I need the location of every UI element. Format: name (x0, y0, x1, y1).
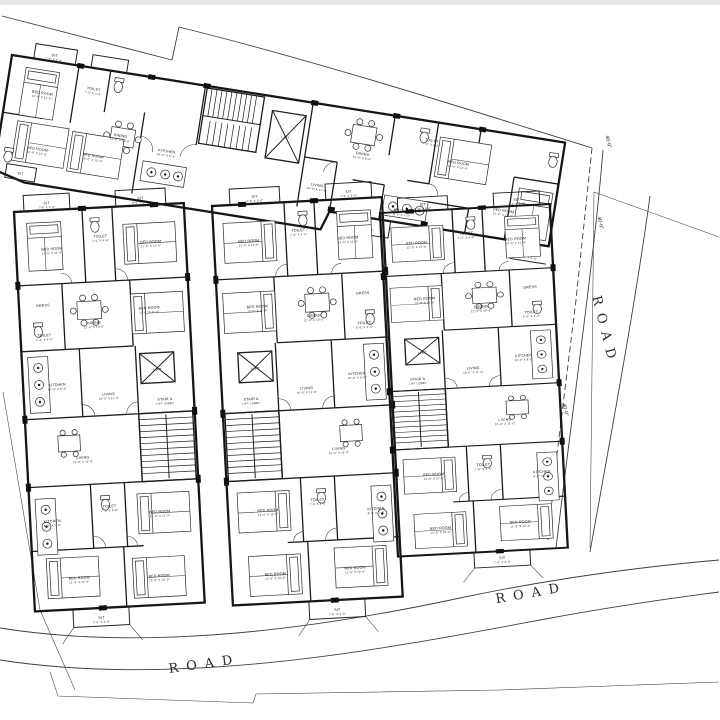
room-label: TOILET6'-6" X 4'-0" (356, 321, 374, 330)
road-label: ROAD (588, 294, 620, 368)
room-label: BED ROOM11'-0" X 12'-0" (69, 576, 91, 585)
room-label: KITCHEN10'-0" X 8'-0" (514, 353, 533, 362)
room-label: TOILET7'-0" X 4'-6" (290, 228, 308, 237)
room-label: STAIR &LIFT LOBBY (156, 397, 174, 406)
room-label: SIT8'-0" X 3'-0" (246, 194, 264, 203)
room-label: KITCHEN8'-0" X 7'-6" (367, 506, 385, 515)
room-label: BED ROOM11'-0" X 12'-0" (140, 239, 162, 248)
toilet-icon (113, 77, 124, 93)
room-label: KITCHEN10'-0" X 8'-0" (157, 148, 177, 159)
dining-table-icon (343, 117, 385, 154)
room-label: SIT7'-6" X 3'-0" (494, 556, 512, 565)
room-label: TOILET6'-6" X 4'-0" (36, 333, 54, 342)
room-label: SIT7'-6" X 3'-0" (93, 616, 111, 625)
block-geometry (11, 187, 209, 646)
block-right: SIT7'-6" X 3'-0"SIT8'-0" X 3'-0"BED ROOM… (377, 190, 572, 586)
room-label: STAIR &LIFT LOBBY (409, 377, 427, 386)
adjacent-plot (590, 192, 719, 548)
room-label: KITCHEN8'-0" X 7'-6" (44, 519, 62, 528)
block-geometry (209, 181, 407, 640)
kitchen-counter-icon (140, 161, 187, 188)
staircase (198, 88, 264, 152)
dimension-label: 40'-0" (596, 216, 605, 230)
room-label: BED ROOM12'-0" X 11'-0" (423, 472, 445, 481)
road-label: ROAD (168, 652, 242, 677)
room-label: LIVING16'-0" X 11'-0" (98, 392, 119, 401)
room-label: LIVING15'-0" X 11'-0" (73, 455, 94, 464)
room-label: TOILET7'-0" X 4'-6" (92, 234, 110, 243)
road-edge-right-2 (590, 196, 650, 552)
bed-icon (12, 121, 70, 169)
room-label: BED ROOM12'-0" X 11'-6" (247, 304, 269, 313)
room-label: LIVING16'-0" X 11'-0" (296, 386, 317, 395)
bed-icon (434, 137, 492, 185)
room-label: BED ROOM12'-0" X 11'-6" (414, 296, 436, 305)
floor-plan-canvas: ROADROADROAD40'-0"40'-0"40'-0" (0, 0, 720, 720)
room-label: BED ROOM11'-0" X 12'-0" (406, 241, 428, 250)
room-label: BED ROOM12'-0" X 10'-0" (149, 573, 171, 582)
room-label: DRESS (356, 291, 370, 296)
room-label: STAIR &LIFT LOBBY (242, 397, 260, 406)
room-label: BED ROOM11'-0" X 12'-0" (344, 565, 366, 574)
room-label: SIT7'-6" X 3'-0" (38, 201, 56, 210)
block-middle: SIT7'-6" X 3'-0"SIT8'-0" X 3'-0"BED ROOM… (209, 181, 407, 640)
room-label: SIT8'-0" X 3'-0" (132, 196, 150, 205)
room-label: BED ROOM12'-6" X 11'-0" (337, 235, 359, 244)
room-label: DINING10'-0" X 8'-6" (353, 151, 373, 162)
room-label: BED ROOM12'-6" X 11'-0" (41, 247, 63, 256)
room-label: KITCHEN10'-0" X 8'-0" (48, 382, 67, 391)
room-label: TOILET7'-0" X 4'-0" (422, 137, 440, 148)
room-label: BED ROOM11'-0" X 12'-0" (510, 520, 532, 529)
room-label: DINING12'-0" X 10'-0" (83, 320, 104, 329)
room-label: LIVING16'-6" X 11'-0" (306, 182, 327, 193)
room-label: BED ROOM12'-0" X 10'-0" (430, 526, 452, 535)
room-label: LIFT (153, 367, 162, 371)
room-label: LIFT (251, 367, 260, 371)
room-label: LIVING15'-0" X 11'-0" (329, 446, 350, 455)
room-label: LIFT (418, 351, 427, 355)
room-label: BED ROOM12'-6" X 11'-0" (505, 236, 527, 245)
room-label: SIT7'-6" X 3'-0" (329, 608, 347, 617)
room-label: TOILET6'-6" X 4'-0" (523, 310, 541, 319)
room-label: BED ROOM12'-0" X 11'-6" (139, 306, 161, 315)
room-label: TOILET7'-0" X 4'-6" (458, 231, 476, 240)
room-label: DRESS (523, 285, 537, 290)
room-label: TOILET7'-0" X 4'-0" (475, 462, 493, 471)
room-label: BED ROOM12'-0" X 10'-0" (265, 572, 287, 581)
room-label: SIT7'-6" X 3'-0" (340, 189, 358, 198)
floorplan-page: ROADROADROAD40'-0"40'-0"40'-0" (0, 0, 720, 720)
room-label: DRESS (36, 303, 50, 308)
room-label: BED ROOM11'-0" X 12'-0" (238, 239, 260, 248)
room-label: TOILET7'-0" X 4'-0" (309, 497, 327, 506)
dimension-label: 40'-0" (604, 135, 613, 149)
room-label: LIVING16'-0" X 11'-0" (463, 366, 484, 375)
road-edge-right-1 (556, 150, 603, 548)
bottom-contour (50, 672, 719, 703)
room-label: SIT (17, 171, 24, 176)
building-wing-top: SIT7'-6" X 3'-0"SITBED ROOM12'-0" X 11'-… (0, 40, 567, 265)
room-label: TOILET7'-0" X 4'-0" (84, 86, 102, 97)
room-label: KITCHEN8'-0" X 7'-6" (533, 469, 551, 478)
road-edge-bottom-2 (0, 592, 719, 670)
toilet-icon (548, 152, 559, 168)
room-label: KITCHEN10'-0" X 8'-0" (347, 371, 366, 380)
room-label: TOILET7'-0" X 4'-0" (101, 504, 119, 513)
block-left: SIT7'-6" X 3'-0"SIT8'-0" X 3'-0"BED ROOM… (11, 187, 209, 646)
room-label: BED ROOM12'-0" X 11'-0" (257, 508, 279, 517)
room-label: BED ROOM12'-0" X 11'-0" (149, 509, 171, 518)
